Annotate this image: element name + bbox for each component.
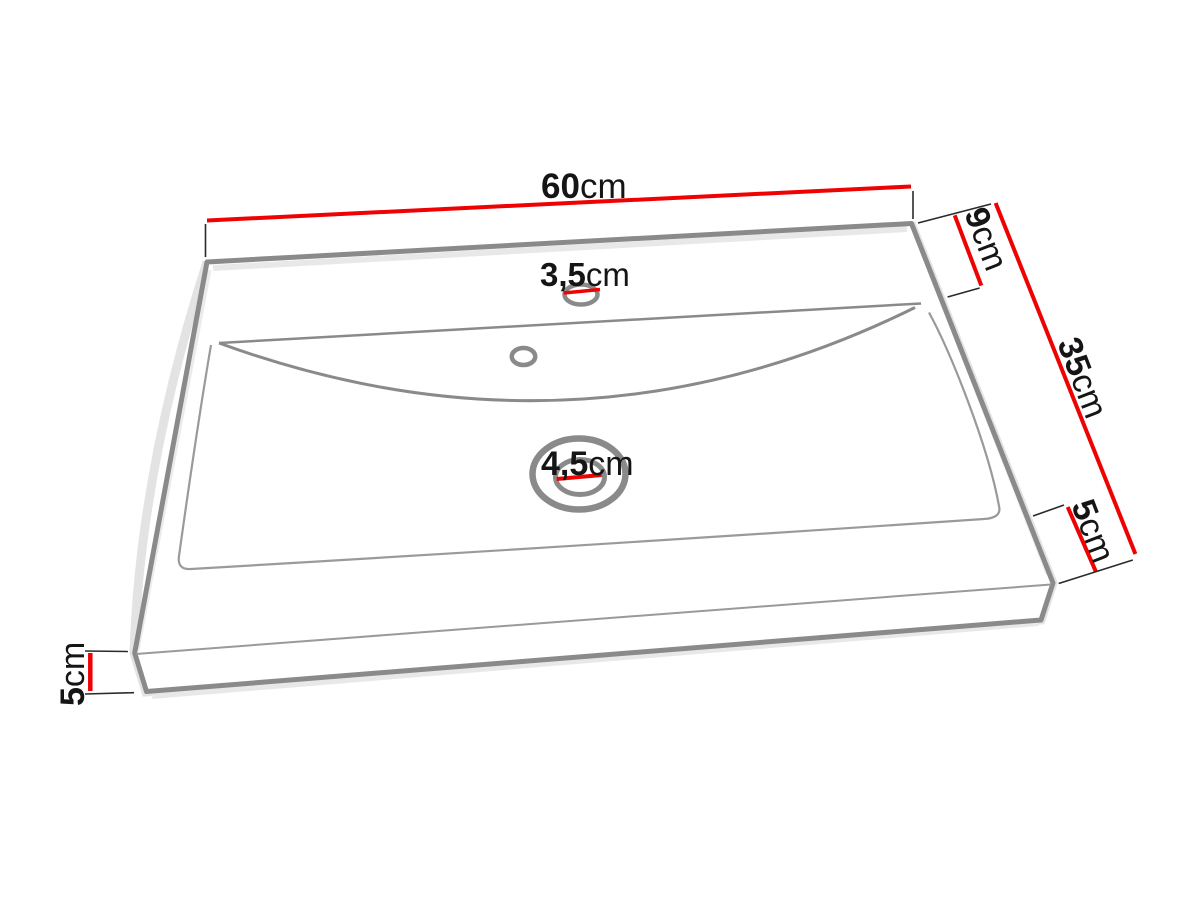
svg-text:60cm: 60cm xyxy=(541,167,627,206)
svg-text:35cm: 35cm xyxy=(1050,332,1115,423)
svg-text:4,5cm: 4,5cm xyxy=(541,445,634,483)
svg-text:5cm: 5cm xyxy=(1064,494,1123,568)
svg-text:5cm: 5cm xyxy=(54,642,92,706)
svg-text:3,5cm: 3,5cm xyxy=(540,256,630,293)
